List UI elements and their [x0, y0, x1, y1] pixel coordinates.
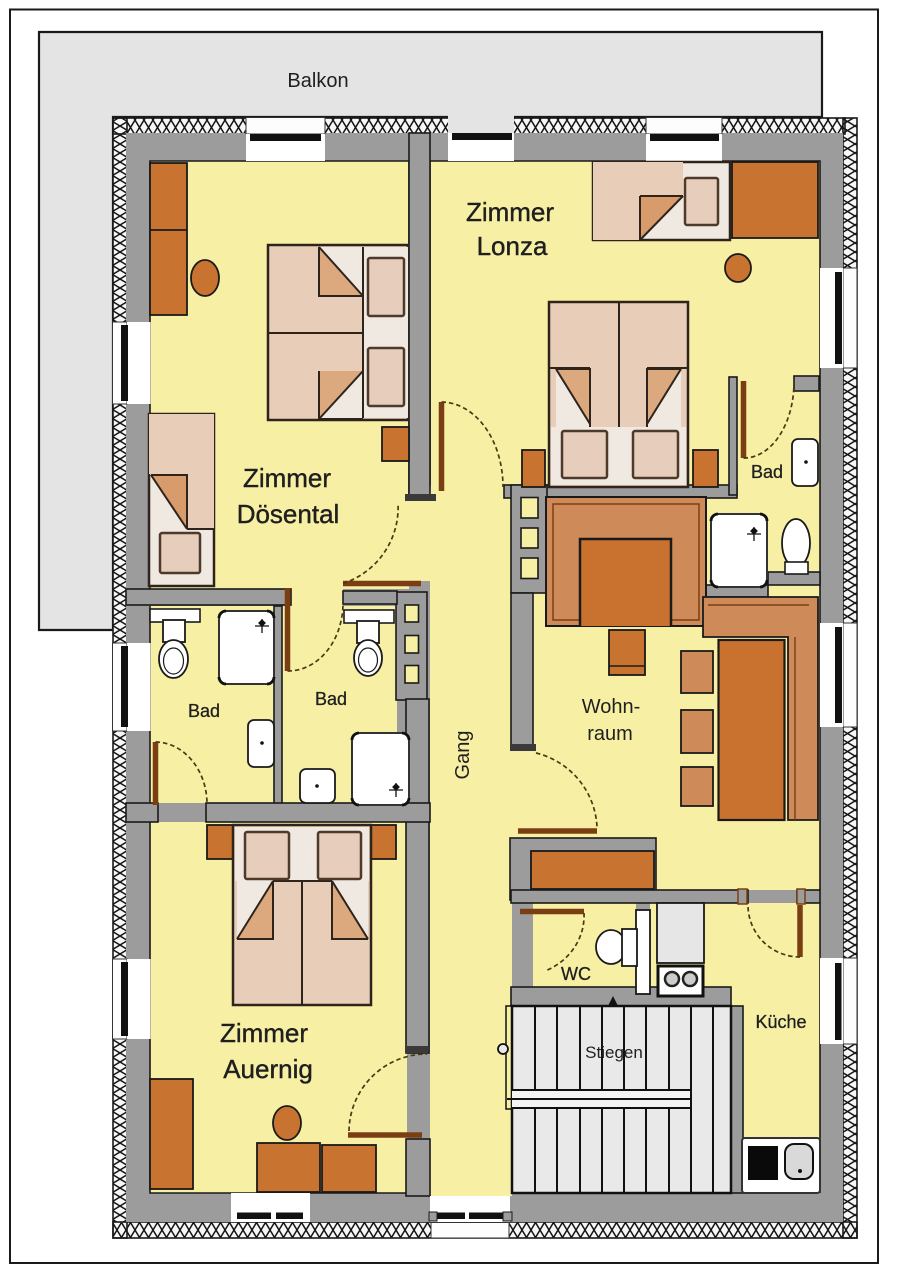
svg-text:Zimmer: Zimmer — [466, 197, 554, 227]
svg-text:Zimmer: Zimmer — [220, 1018, 308, 1048]
svg-text:Küche: Küche — [755, 1012, 806, 1032]
svg-text:Bad: Bad — [315, 689, 347, 709]
svg-text:Bad: Bad — [188, 701, 220, 721]
svg-text:Auernig: Auernig — [223, 1054, 313, 1084]
svg-text:Gang: Gang — [452, 731, 474, 780]
svg-text:Balkon: Balkon — [287, 70, 348, 92]
svg-text:Lonza: Lonza — [477, 231, 548, 261]
svg-text:Dösental: Dösental — [237, 499, 340, 529]
svg-text:Bad: Bad — [751, 462, 783, 482]
svg-text:raum: raum — [587, 723, 633, 745]
svg-text:Wohn-: Wohn- — [582, 696, 641, 718]
svg-text:Zimmer: Zimmer — [243, 463, 331, 493]
svg-text:WC: WC — [561, 964, 591, 984]
svg-text:Stiegen: Stiegen — [585, 1043, 643, 1062]
